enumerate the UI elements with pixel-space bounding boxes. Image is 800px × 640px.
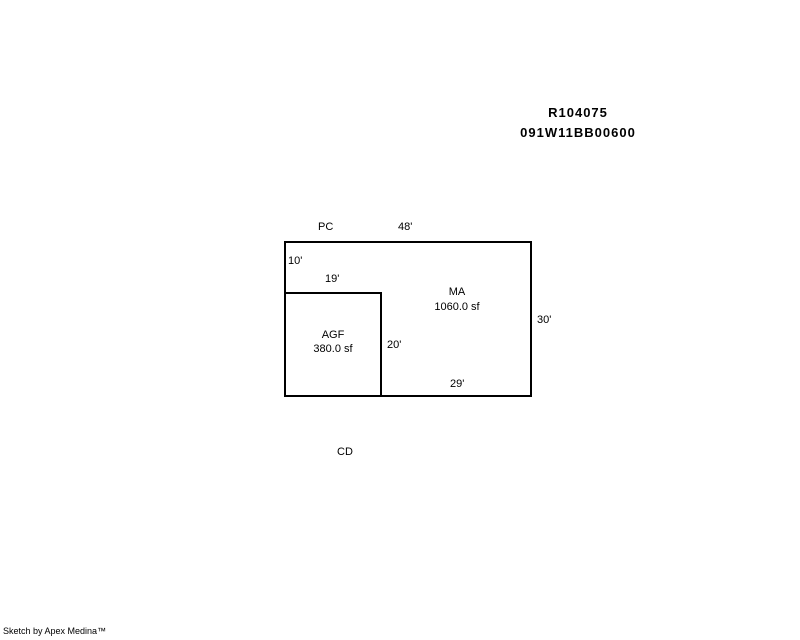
- label-pc: PC: [318, 221, 333, 234]
- dimension-inner-right: 20': [387, 339, 401, 352]
- label-cd: CD: [337, 446, 353, 459]
- agf-area-label: AGF 380.0 sf: [284, 328, 382, 356]
- dimension-top: 48': [398, 221, 412, 234]
- main-area-label: MA 1060.0 sf: [382, 285, 532, 315]
- agf-area-code: AGF: [284, 328, 382, 342]
- dimension-bottom: 29': [450, 378, 464, 391]
- agf-area-sqft: 380.0 sf: [284, 342, 382, 356]
- sketch-credit: Sketch by Apex Medina™: [3, 626, 106, 637]
- dimension-inner-top: 19': [325, 273, 339, 286]
- dimension-right: 30': [537, 314, 551, 327]
- record-id: R104075: [478, 103, 678, 123]
- main-area-code: MA: [382, 285, 532, 300]
- dimension-left-upper: 10': [288, 255, 302, 268]
- parcel-header: R104075 091W11BB00600: [478, 103, 678, 143]
- main-area-sqft: 1060.0 sf: [382, 300, 532, 315]
- parcel-id: 091W11BB00600: [478, 123, 678, 143]
